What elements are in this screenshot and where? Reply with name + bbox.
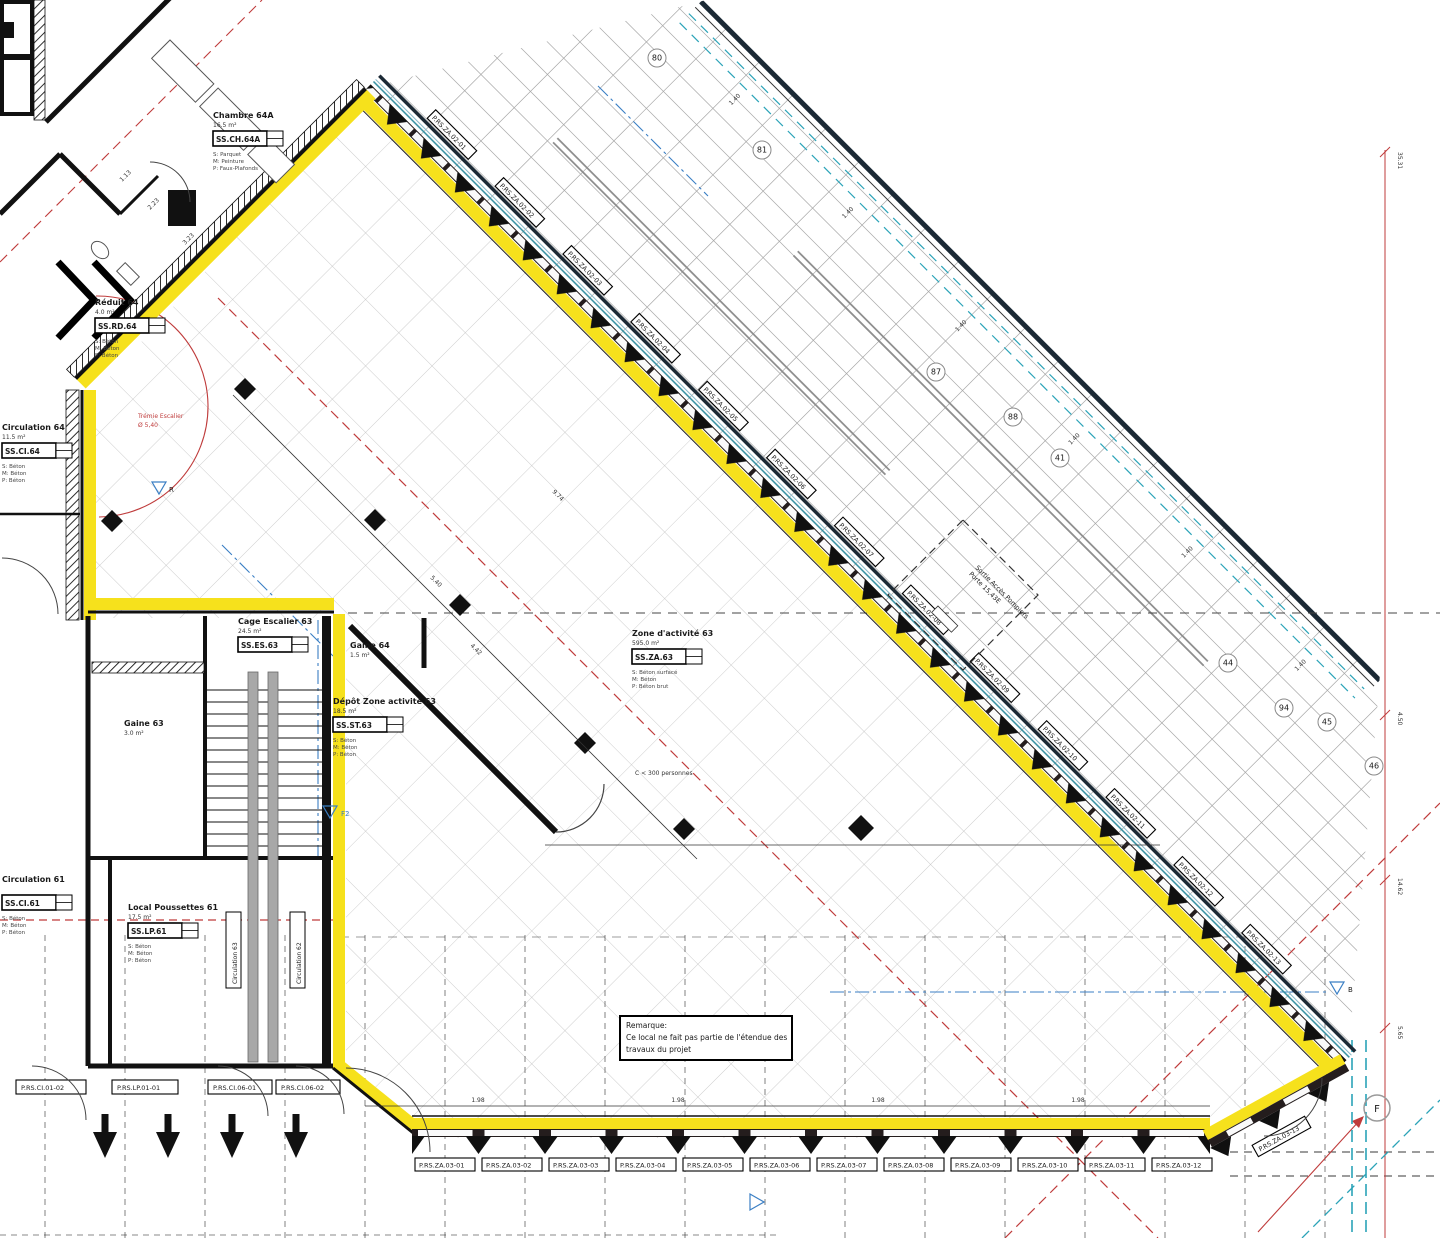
svg-text:4.50: 4.50 — [1396, 712, 1403, 726]
svg-text:F2: F2 — [341, 810, 349, 818]
svg-text:Sortie Accès Pompiers: Sortie Accès Pompiers — [974, 564, 1031, 621]
bottom-window-tags: P.RS.ZA.03-01 P.RS.ZA.03-02 P.RS.ZA.03-0… — [415, 1158, 1212, 1171]
svg-text:1.40: 1.40 — [954, 319, 969, 334]
svg-text:Gaine 64: Gaine 64 — [350, 641, 390, 650]
svg-text:S: Béton: S: Béton — [2, 463, 26, 470]
right-edge-dims: 35.31 4.50 14.62 5.65 — [1396, 152, 1403, 1040]
svg-text:14.62: 14.62 — [1396, 878, 1403, 895]
svg-text:Dépôt Zone activité 63: Dépôt Zone activité 63 — [333, 696, 436, 706]
svg-text:1.40: 1.40 — [1385, 750, 1400, 765]
svg-text:M: Béton: M: Béton — [2, 470, 27, 477]
svg-text:P.RS.ZA.03-05: P.RS.ZA.03-05 — [687, 1162, 732, 1170]
svg-text:P.RS.ZA.03-06: P.RS.ZA.03-06 — [754, 1162, 799, 1170]
floor-plan-canvas: 1.40 1.40 1.40 1.40 1.40 1.40 1.40 — [0, 0, 1440, 1238]
remark-box: Remarque: Ce local ne fait pas partie de… — [620, 1016, 792, 1060]
svg-text:P.RS.ZA.03-08: P.RS.ZA.03-08 — [888, 1162, 933, 1170]
svg-text:S: Béton: S: Béton — [95, 338, 119, 345]
svg-text:1.13: 1.13 — [118, 169, 133, 184]
svg-text:Réduit 64: Réduit 64 — [95, 297, 139, 307]
svg-text:81: 81 — [757, 146, 767, 155]
svg-text:M: Béton: M: Béton — [2, 922, 27, 929]
svg-text:B: B — [1348, 986, 1353, 994]
svg-text:P.RS.CI.01-02: P.RS.CI.01-02 — [21, 1084, 64, 1092]
svg-text:P.RS.CI.06-01: P.RS.CI.06-01 — [213, 1084, 256, 1092]
svg-text:Circulation 62: Circulation 62 — [296, 942, 303, 984]
svg-text:SS.ES.63: SS.ES.63 — [241, 641, 278, 650]
svg-text:P: Béton: P: Béton — [128, 957, 152, 964]
svg-text:S: Béton: S: Béton — [128, 943, 152, 950]
svg-text:SS.CI.61: SS.CI.61 — [5, 899, 40, 908]
svg-text:P.RS.ZA.03-09: P.RS.ZA.03-09 — [955, 1162, 1000, 1170]
vertical-stamp-circulation63: Circulation 63 — [226, 912, 241, 988]
svg-text:M: Béton: M: Béton — [128, 950, 153, 957]
bottom-facade — [412, 1116, 1210, 1158]
svg-text:Circulation 63: Circulation 63 — [232, 942, 239, 984]
svg-text:P.RS.ZA.03-11: P.RS.ZA.03-11 — [1089, 1162, 1134, 1170]
svg-text:595.0 m²: 595.0 m² — [632, 640, 660, 647]
svg-text:Remarque:: Remarque: — [626, 1021, 667, 1030]
svg-text:M: Peinture: M: Peinture — [213, 159, 245, 165]
marker-f-bubble: F — [1364, 1095, 1390, 1121]
svg-text:SS.ZA.63: SS.ZA.63 — [635, 653, 673, 662]
svg-text:P: Faux-Plafonds: P: Faux-Plafonds — [213, 166, 258, 172]
svg-text:1.40: 1.40 — [1293, 658, 1308, 673]
svg-text:Zone d'activité 63: Zone d'activité 63 — [632, 628, 713, 638]
escalator-rail-right — [268, 672, 278, 1062]
svg-text:Gaine 63: Gaine 63 — [124, 719, 164, 728]
marker-triangle-right — [750, 1194, 764, 1210]
svg-text:P.RS.CI.06-02: P.RS.CI.06-02 — [281, 1084, 324, 1092]
svg-text:S: Béton: S: Béton — [2, 915, 26, 922]
svg-text:R: R — [169, 486, 174, 494]
svg-text:24.5 m²: 24.5 m² — [238, 628, 262, 635]
svg-text:88: 88 — [1008, 413, 1018, 422]
svg-text:1.98: 1.98 — [871, 1097, 885, 1104]
svg-text:P: Béton: P: Béton — [333, 751, 357, 758]
svg-text:11.5 m²: 11.5 m² — [2, 434, 26, 441]
svg-text:M: Béton: M: Béton — [333, 744, 358, 751]
svg-text:1.98: 1.98 — [671, 1097, 685, 1104]
door-tags: P.RS.CI.01-02 P.RS.LP.01-01 P.RS.CI.06-0… — [16, 1080, 340, 1094]
svg-text:P: Béton brut: P: Béton brut — [632, 683, 669, 690]
svg-text:P.RS.LP.01-01: P.RS.LP.01-01 — [117, 1084, 160, 1092]
svg-text:2.23: 2.23 — [146, 197, 161, 212]
svg-text:80: 80 — [652, 54, 662, 63]
svg-text:1.40: 1.40 — [841, 206, 856, 221]
svg-text:Local Poussettes 61: Local Poussettes 61 — [128, 903, 218, 912]
svg-text:M: Béton: M: Béton — [95, 345, 120, 352]
svg-text:P.RS.ZA.03-02: P.RS.ZA.03-02 — [486, 1162, 531, 1170]
svg-text:S: Béton: S: Béton — [333, 737, 357, 744]
vertical-stamp-circulation62: Circulation 62 — [290, 912, 305, 988]
svg-text:Ø 5,40: Ø 5,40 — [138, 422, 158, 429]
svg-text:1.5 m²: 1.5 m² — [350, 652, 370, 659]
svg-text:F: F — [1374, 1104, 1380, 1115]
sortie-annotation: Sortie Accès Pompiers Porte 15,43E — [967, 564, 1030, 627]
svg-text:P: Béton: P: Béton — [95, 352, 119, 359]
svg-text:18.5 m²: 18.5 m² — [333, 708, 357, 715]
svg-text:16.5 m²: 16.5 m² — [213, 122, 237, 129]
svg-text:5.65: 5.65 — [1396, 1026, 1403, 1040]
svg-text:Ce local ne fait pas partie de: Ce local ne fait pas partie de l'étendue… — [626, 1033, 787, 1042]
svg-text:87: 87 — [931, 368, 941, 377]
svg-text:3.0 m²: 3.0 m² — [124, 730, 144, 737]
svg-text:46: 46 — [1369, 762, 1379, 771]
svg-text:P: Béton: P: Béton — [2, 929, 26, 936]
svg-text:SS.ST.63: SS.ST.63 — [336, 721, 372, 730]
svg-text:SS.LP.61: SS.LP.61 — [131, 927, 167, 936]
room-stamp-poussettes61: Local Poussettes 61 17.5 m² SS.LP.61 S: … — [128, 903, 218, 964]
svg-text:1.40: 1.40 — [1180, 545, 1195, 560]
svg-text:P.RS.ZA.03-03: P.RS.ZA.03-03 — [553, 1162, 598, 1170]
svg-text:SS.RD.64: SS.RD.64 — [98, 322, 137, 331]
svg-text:SS.CH.64A: SS.CH.64A — [216, 135, 260, 144]
svg-text:Trémie Escalier: Trémie Escalier — [137, 413, 184, 420]
marker-b: B — [1330, 982, 1353, 994]
svg-text:travaux du projet: travaux du projet — [626, 1045, 691, 1054]
svg-text:1.40: 1.40 — [728, 92, 743, 107]
svg-text:Chambre 64A: Chambre 64A — [213, 111, 274, 120]
room-stamp-circulation64: Circulation 64 11.5 m² SS.CI.64 S: Béton… — [2, 423, 72, 484]
svg-text:1.40: 1.40 — [1067, 432, 1082, 447]
svg-text:Cage Escalier 63: Cage Escalier 63 — [238, 617, 312, 626]
svg-text:4.0 m²: 4.0 m² — [95, 309, 115, 316]
svg-text:P.RS.ZA.03-07: P.RS.ZA.03-07 — [821, 1162, 866, 1170]
svg-text:P.RS.ZA.03-12: P.RS.ZA.03-12 — [1156, 1162, 1201, 1170]
room-stamp-gaine63: Gaine 63 3.0 m² — [124, 719, 164, 737]
escalator-rail-left — [248, 672, 258, 1062]
svg-text:94: 94 — [1279, 704, 1289, 713]
svg-text:Circulation 64: Circulation 64 — [2, 423, 65, 432]
svg-text:M: Béton: M: Béton — [632, 676, 657, 683]
svg-text:45: 45 — [1322, 718, 1332, 727]
svg-text:17.5 m²: 17.5 m² — [128, 914, 152, 921]
svg-text:44: 44 — [1223, 659, 1233, 668]
room-stamp-circulation61: Circulation 61 SS.CI.61 S: Béton M: Béto… — [2, 875, 72, 936]
room-stamp-cage63: Cage Escalier 63 24.5 m² SS.ES.63 — [238, 617, 312, 652]
svg-text:1.98: 1.98 — [471, 1097, 485, 1104]
svg-text:41: 41 — [1055, 454, 1065, 463]
svg-text:P.RS.ZA.03-01: P.RS.ZA.03-01 — [419, 1162, 464, 1170]
svg-text:P: Béton: P: Béton — [2, 477, 26, 484]
svg-text:SS.CI.64: SS.CI.64 — [5, 447, 40, 456]
svg-text:S: Parquet: S: Parquet — [213, 152, 242, 158]
stair-treads — [207, 690, 322, 846]
svg-text:S: Béton surfacé: S: Béton surfacé — [632, 669, 678, 676]
svg-text:35.31: 35.31 — [1396, 152, 1403, 169]
svg-text:P.RS.ZA.03-10: P.RS.ZA.03-10 — [1022, 1162, 1067, 1170]
svg-text:1.98: 1.98 — [1071, 1097, 1085, 1104]
service-block — [88, 598, 345, 1068]
floor-plan-sheet: 1.40 1.40 1.40 1.40 1.40 1.40 1.40 — [0, 0, 1440, 1238]
left-vertical-wall — [66, 390, 96, 620]
svg-text:P.RS.ZA.03-04: P.RS.ZA.03-04 — [620, 1162, 665, 1170]
capacity-note: C < 300 personnes — [635, 770, 693, 777]
svg-text:Circulation 61: Circulation 61 — [2, 875, 65, 884]
